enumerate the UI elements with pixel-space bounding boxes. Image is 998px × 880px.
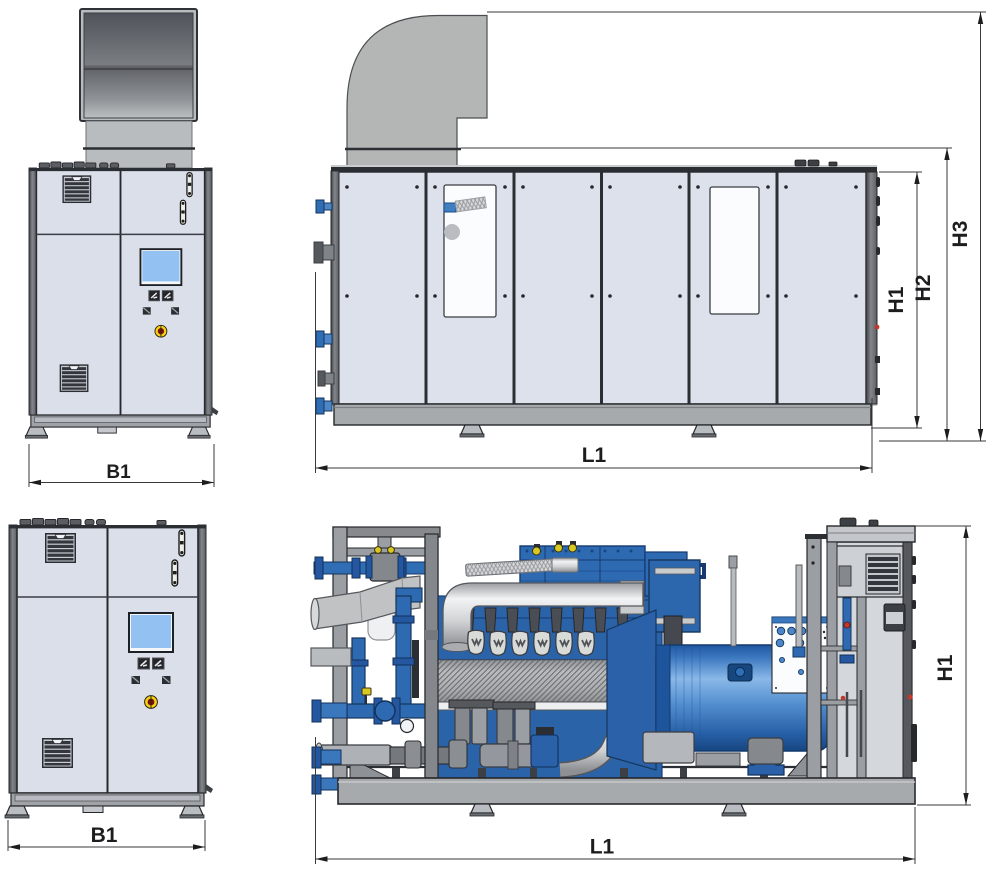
svg-text:L1: L1 xyxy=(582,444,607,467)
svg-text:H2: H2 xyxy=(912,275,935,302)
svg-text:B1: B1 xyxy=(91,824,118,847)
svg-text:H1: H1 xyxy=(934,654,957,681)
svg-text:B1: B1 xyxy=(106,462,131,483)
svg-text:H1: H1 xyxy=(885,286,908,313)
svg-text:L1: L1 xyxy=(590,836,615,859)
svg-text:H3: H3 xyxy=(949,221,972,248)
